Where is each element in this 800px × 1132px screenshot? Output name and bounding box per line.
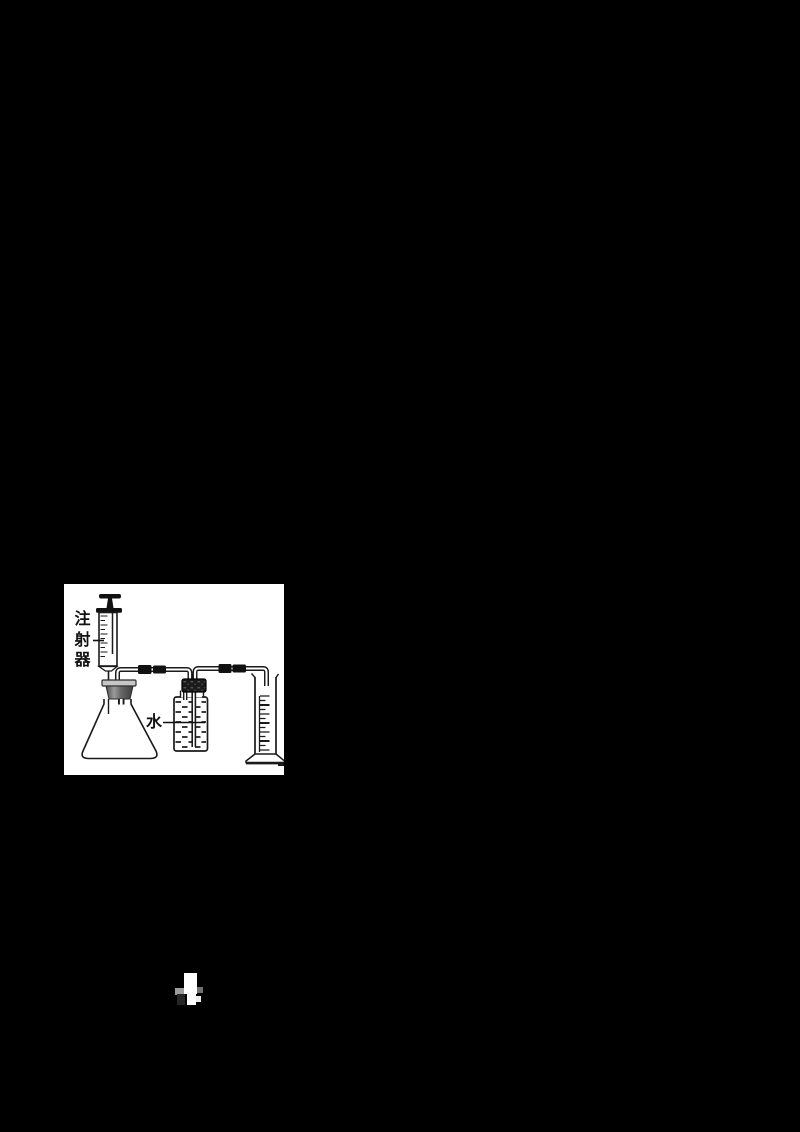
image-fragment-part: [196, 996, 201, 1002]
tube-clip: [233, 665, 247, 673]
apparatus-figure: 注射器 水: [64, 584, 284, 775]
image-fragment-part: [187, 994, 196, 1005]
cylinder-base: [246, 754, 284, 763]
syringe-plunger: [99, 594, 121, 599]
tube-clip: [219, 664, 232, 673]
tube-clip: [138, 665, 152, 674]
measuring-cylinder: [246, 674, 284, 766]
document-page: { "page": { "background_color": "#000000…: [0, 0, 800, 1132]
flask-stopper: [102, 680, 136, 699]
bottle-stopper: [182, 679, 206, 692]
image-fragment-part: [184, 973, 197, 994]
image-fragment-part: [197, 987, 203, 993]
apparatus-drawing: [64, 584, 284, 775]
water-label: 水: [146, 714, 162, 731]
image-fragment-part: [177, 994, 185, 1005]
gas-washing-bottle: [174, 690, 208, 751]
tube-clip: [153, 666, 166, 674]
syringe-label: 注射器: [73, 610, 92, 672]
bottle-water: [176, 700, 207, 750]
